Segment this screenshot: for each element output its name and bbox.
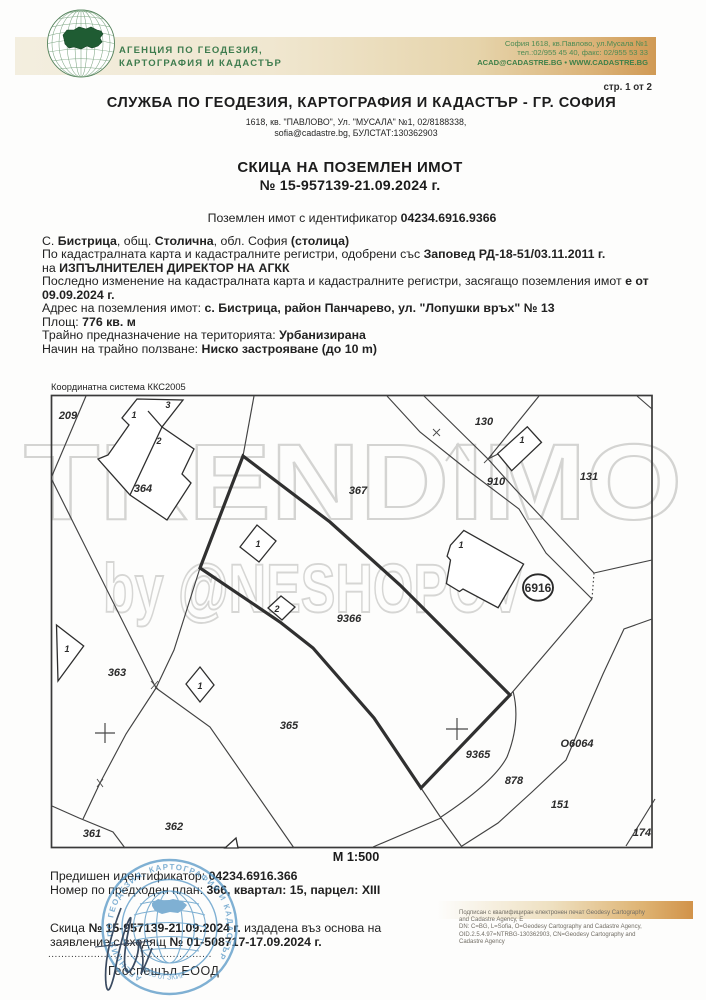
svg-text:361: 361: [83, 828, 101, 840]
svg-text:131: 131: [580, 471, 598, 483]
svg-text:1: 1: [131, 410, 136, 420]
svg-text:209: 209: [58, 410, 78, 422]
svg-text:2: 2: [273, 604, 279, 614]
svg-text:365: 365: [280, 720, 299, 732]
svg-text:367: 367: [349, 485, 368, 497]
svg-text:1: 1: [64, 644, 69, 654]
svg-text:6916: 6916: [525, 581, 552, 595]
svg-text:1: 1: [519, 435, 524, 445]
svg-text:151: 151: [551, 799, 569, 811]
svg-text:9366: 9366: [337, 613, 362, 625]
svg-text:1: 1: [197, 681, 202, 691]
svg-text:364: 364: [134, 483, 152, 495]
svg-text:910: 910: [487, 476, 506, 488]
svg-text:363: 363: [108, 667, 126, 679]
svg-text:362: 362: [165, 821, 183, 833]
svg-text:О6064: О6064: [560, 738, 593, 750]
svg-text:2: 2: [155, 436, 161, 446]
svg-text:3: 3: [165, 400, 170, 410]
svg-text:174: 174: [633, 827, 651, 839]
svg-text:130: 130: [475, 416, 494, 428]
svg-text:1: 1: [255, 539, 260, 549]
svg-text:1: 1: [458, 540, 463, 550]
svg-text:9365: 9365: [466, 749, 491, 761]
svg-text:878: 878: [505, 775, 524, 787]
